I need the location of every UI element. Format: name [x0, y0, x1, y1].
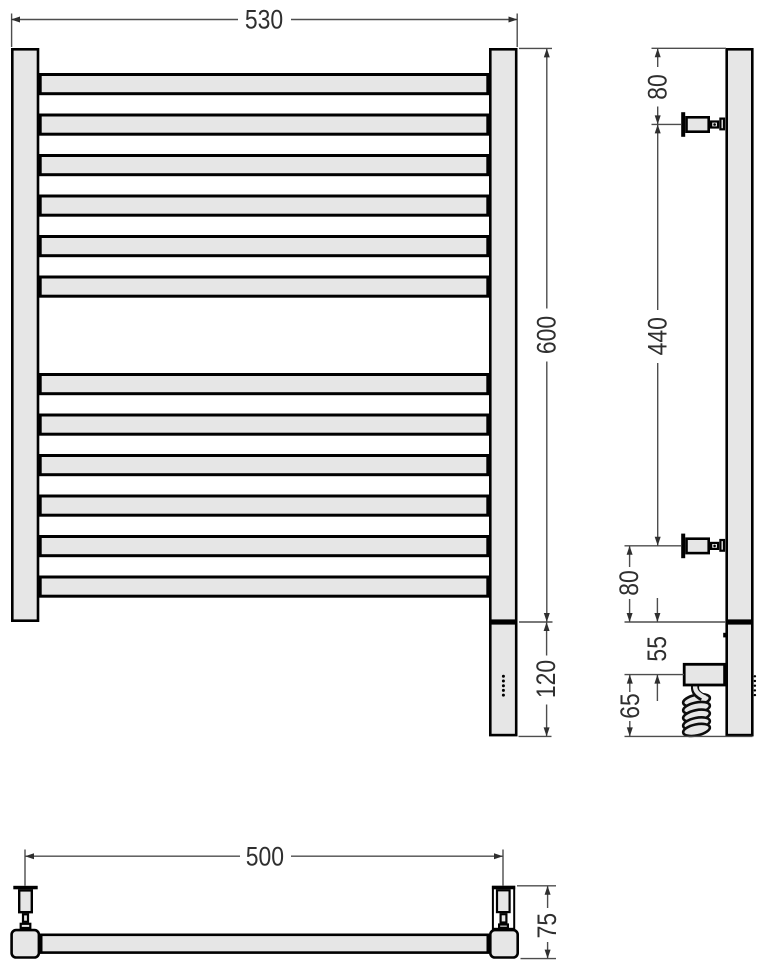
svg-text:65: 65 — [615, 693, 645, 719]
svg-text:500: 500 — [246, 842, 284, 872]
svg-text:440: 440 — [643, 317, 673, 355]
svg-text:600: 600 — [532, 316, 562, 354]
svg-text:75: 75 — [532, 913, 562, 939]
svg-text:80: 80 — [615, 570, 645, 596]
svg-text:80: 80 — [643, 74, 673, 100]
svg-text:120: 120 — [532, 660, 562, 698]
svg-text:530: 530 — [245, 5, 283, 35]
svg-text:55: 55 — [642, 636, 672, 662]
